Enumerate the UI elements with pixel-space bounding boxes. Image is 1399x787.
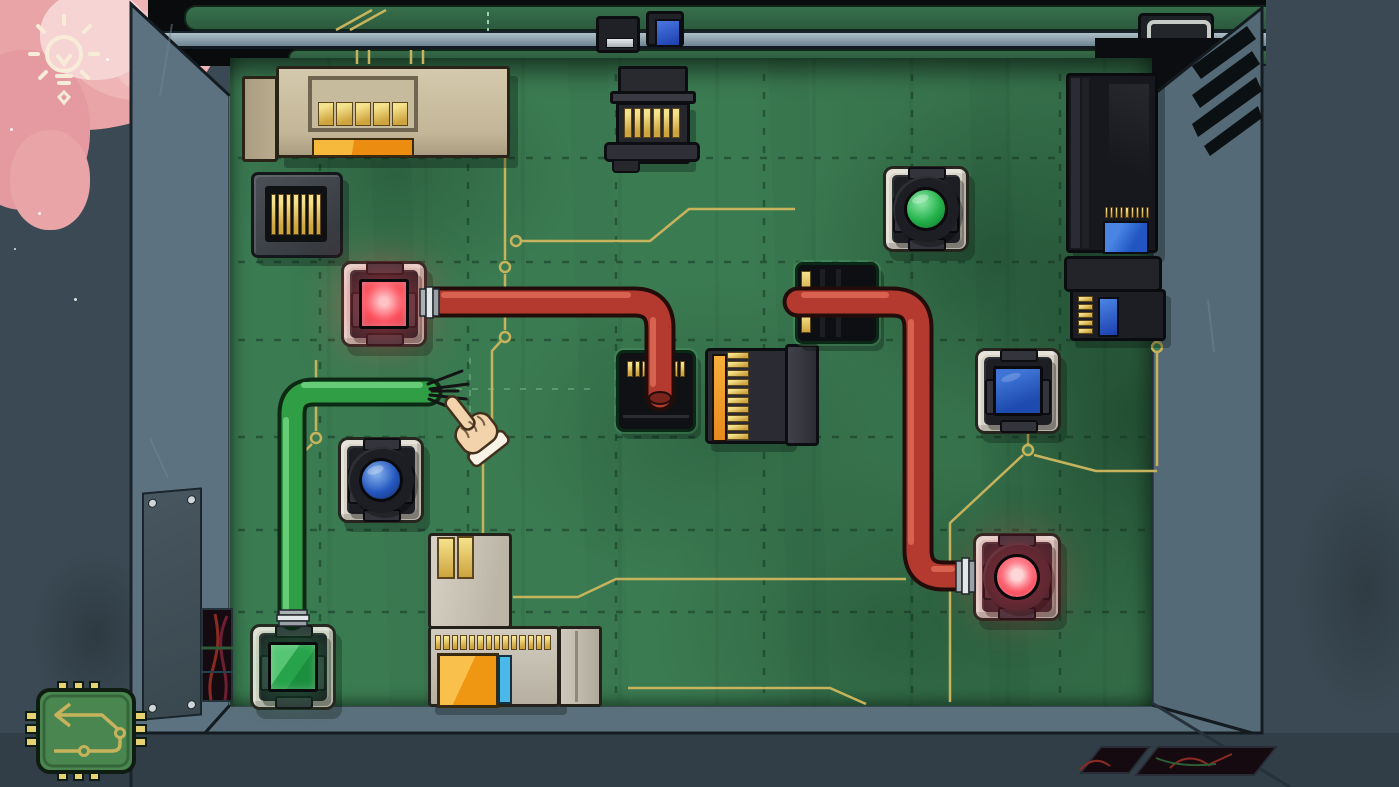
green-cable[interactable]: [277, 371, 468, 626]
undo-button[interactable]: [6, 680, 166, 784]
chip-arrow-icon: [26, 682, 146, 780]
lightbulb-icon: [30, 16, 98, 103]
cable-plug: [420, 287, 439, 318]
cable-plug: [277, 610, 309, 626]
red-cable-right[interactable]: [798, 295, 975, 594]
cable-plug: [956, 558, 975, 594]
hint-button[interactable]: [22, 10, 106, 114]
game-scene: [0, 0, 1399, 787]
cable-layer: [0, 0, 1399, 787]
